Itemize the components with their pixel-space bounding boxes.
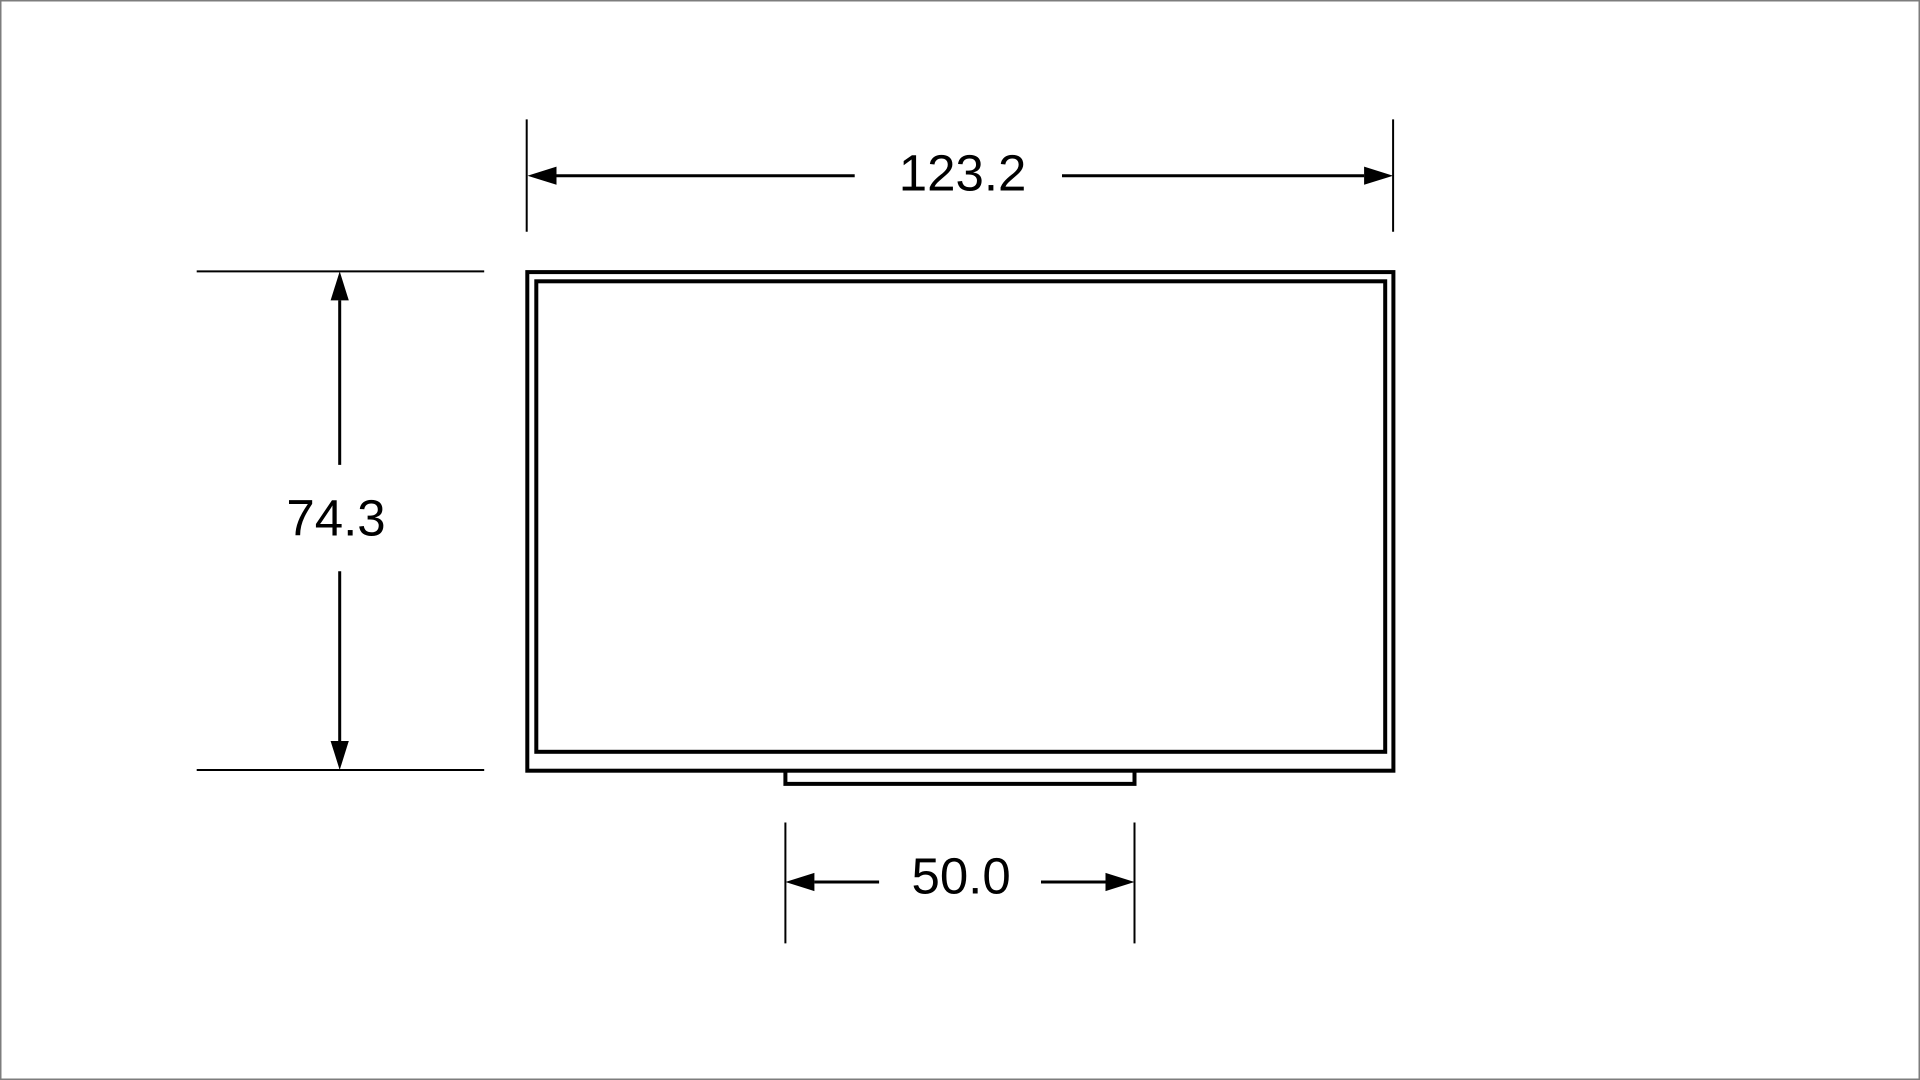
svg-text:74.3: 74.3 xyxy=(286,490,385,547)
svg-text:50.0: 50.0 xyxy=(911,848,1010,905)
svg-text:123.2: 123.2 xyxy=(899,144,1027,201)
